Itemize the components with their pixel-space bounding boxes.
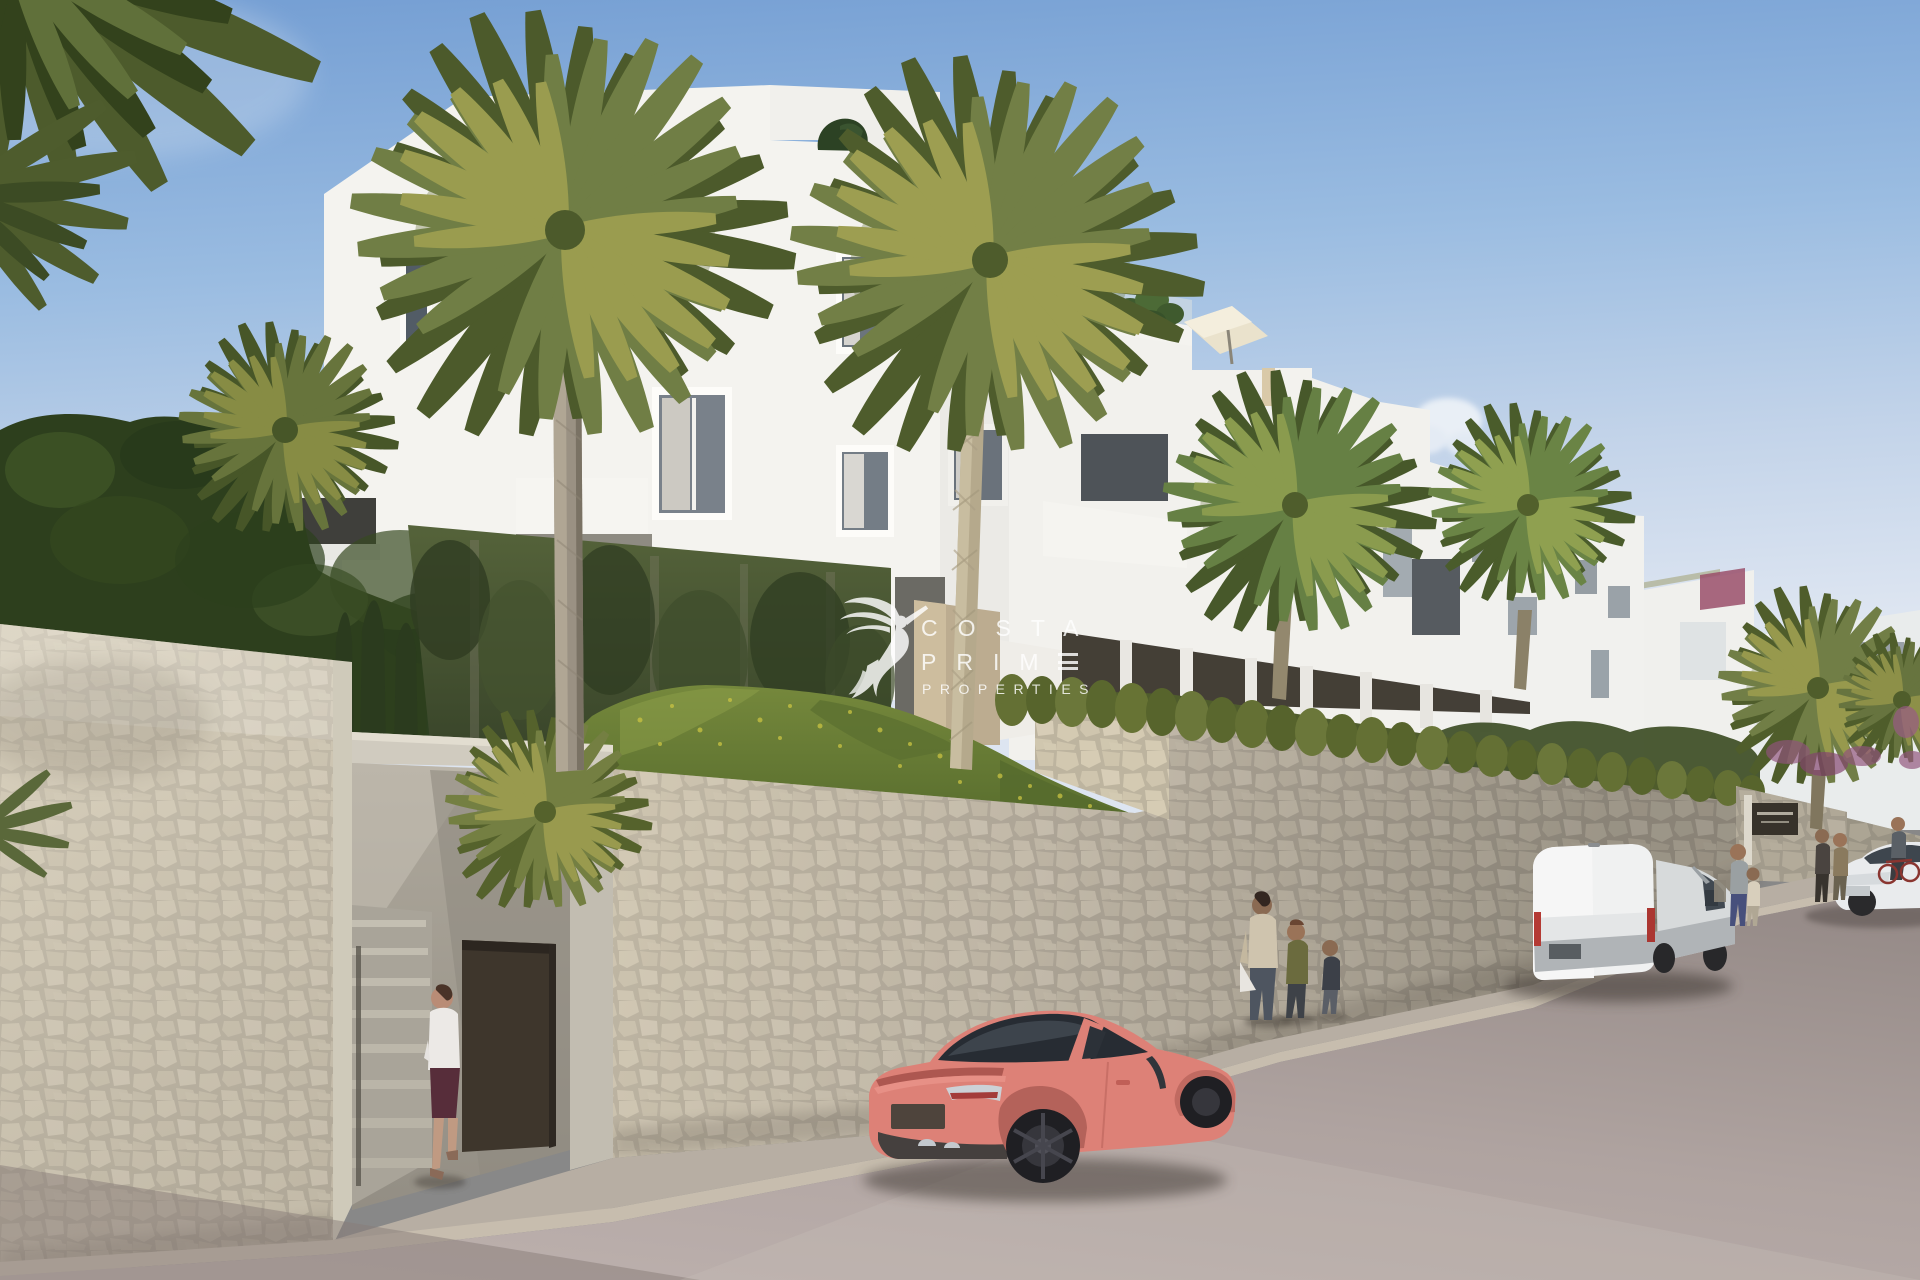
svg-text:PROPERTIES: PROPERTIES [922, 681, 1097, 697]
svg-text:COSTA: COSTA [921, 615, 1099, 641]
svg-text:PRIM: PRIM [921, 649, 1059, 675]
